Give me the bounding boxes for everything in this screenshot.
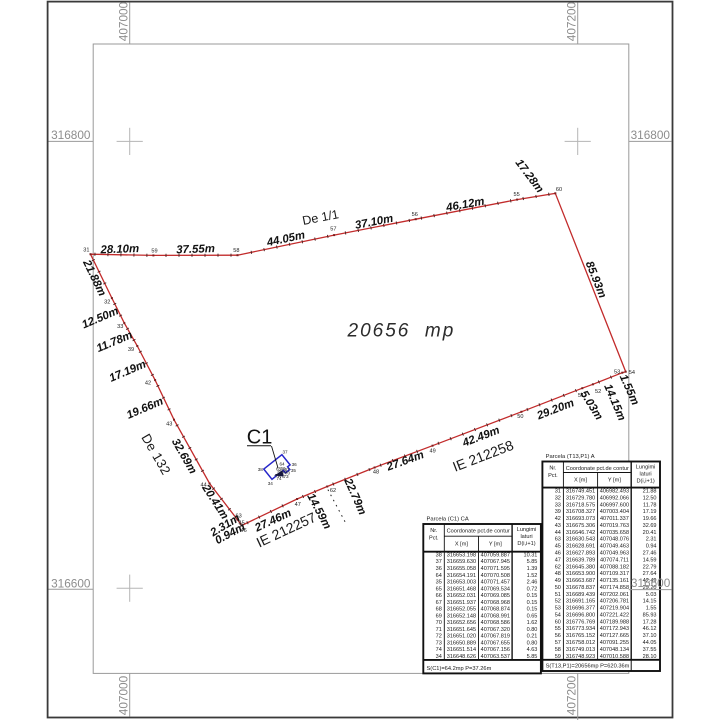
- svg-text:407003.404: 407003.404: [600, 509, 629, 515]
- svg-text:316718.575: 316718.575: [566, 502, 595, 508]
- svg-text:316646.742: 316646.742: [566, 530, 595, 536]
- svg-text:Lungimi: Lungimi: [517, 527, 537, 533]
- svg-text:57: 57: [555, 640, 561, 646]
- svg-text:Parcela (C1) CA: Parcela (C1) CA: [427, 517, 469, 523]
- svg-text:70: 70: [436, 620, 442, 626]
- svg-text:46: 46: [240, 528, 246, 534]
- svg-text:407068.586: 407068.586: [481, 620, 510, 626]
- svg-text:316773.934: 316773.934: [566, 626, 595, 632]
- svg-text:0.94: 0.94: [646, 544, 657, 550]
- svg-text:36: 36: [292, 462, 298, 467]
- svg-text:407067.320: 407067.320: [481, 627, 510, 633]
- svg-text:59: 59: [555, 654, 561, 660]
- svg-text:42: 42: [555, 516, 561, 522]
- svg-text:0.80: 0.80: [527, 640, 538, 646]
- svg-text:316693.073: 316693.073: [566, 516, 595, 522]
- svg-text:407135.161: 407135.161: [600, 578, 629, 584]
- svg-text:19.66: 19.66: [643, 516, 657, 522]
- svg-text:316765.152: 316765.152: [566, 633, 595, 639]
- svg-text:73: 73: [436, 640, 442, 646]
- svg-text:48: 48: [373, 470, 379, 476]
- svg-text:39: 39: [128, 347, 134, 353]
- svg-text:Coordonate pct.de contur: Coordonate pct.de contur: [566, 466, 629, 472]
- svg-text:34: 34: [436, 654, 442, 660]
- svg-text:407127.665: 407127.665: [600, 633, 629, 639]
- svg-text:S(T13,P1)=20656mp P=620.36m: S(T13,P1)=20656mp P=620.36m: [546, 664, 630, 670]
- svg-text:407048.134: 407048.134: [600, 647, 629, 653]
- svg-text:45: 45: [238, 520, 244, 526]
- svg-text:57: 57: [330, 227, 336, 233]
- svg-text:316653.003: 316653.003: [447, 580, 476, 586]
- svg-text:5.03: 5.03: [646, 592, 657, 598]
- svg-text:49: 49: [555, 578, 561, 584]
- svg-text:407070.508: 407070.508: [481, 573, 510, 579]
- svg-text:407189.988: 407189.988: [600, 619, 629, 625]
- svg-text:55: 55: [555, 626, 561, 632]
- svg-text:316651.468: 316651.468: [447, 586, 476, 592]
- svg-text:laturi: laturi: [520, 534, 532, 540]
- svg-text:62: 62: [330, 488, 336, 494]
- svg-text:407011.337: 407011.337: [600, 516, 629, 522]
- svg-text:316675.306: 316675.306: [566, 523, 595, 529]
- svg-text:Coordonate pct.de contur: Coordonate pct.de contur: [447, 528, 510, 534]
- svg-text:406997.600: 406997.600: [600, 502, 629, 508]
- svg-text:0.15: 0.15: [527, 593, 538, 599]
- svg-text:50: 50: [555, 585, 561, 591]
- svg-text:1.55: 1.55: [646, 606, 657, 612]
- svg-text:316696.377: 316696.377: [566, 606, 595, 612]
- svg-text:316749.451: 316749.451: [566, 489, 595, 495]
- svg-text:316729.780: 316729.780: [566, 495, 595, 501]
- svg-text:64: 64: [436, 573, 442, 579]
- svg-text:316652.148: 316652.148: [447, 613, 476, 619]
- svg-text:407069.085: 407069.085: [481, 593, 510, 599]
- svg-text:63: 63: [555, 537, 561, 543]
- svg-text:72: 72: [436, 634, 442, 640]
- svg-text:0.72: 0.72: [527, 586, 538, 592]
- svg-text:407200: 407200: [565, 675, 579, 715]
- svg-text:316600: 316600: [51, 577, 91, 591]
- svg-text:20656 mp: 20656 mp: [347, 321, 456, 342]
- svg-text:316639.789: 316639.789: [566, 557, 595, 563]
- svg-text:36: 36: [436, 566, 442, 572]
- svg-text:407069.534: 407069.534: [481, 586, 510, 592]
- svg-text:46.12: 46.12: [643, 626, 657, 632]
- svg-text:37.55: 37.55: [643, 647, 657, 653]
- svg-text:31: 31: [83, 248, 89, 254]
- svg-text:2.31: 2.31: [646, 537, 657, 543]
- svg-text:407048.076: 407048.076: [600, 537, 629, 543]
- svg-text:66: 66: [436, 593, 442, 599]
- svg-text:5.85: 5.85: [527, 654, 538, 660]
- svg-text:32: 32: [555, 495, 561, 501]
- svg-text:316652.031: 316652.031: [447, 593, 476, 599]
- svg-text:S(C1)=64.2mp P=37.26m: S(C1)=64.2mp P=37.26m: [427, 666, 492, 672]
- svg-text:35: 35: [291, 468, 297, 473]
- svg-text:407035.658: 407035.658: [600, 530, 629, 536]
- svg-text:316627.893: 316627.893: [566, 551, 595, 557]
- svg-text:406992.066: 406992.066: [600, 495, 629, 501]
- svg-text:56: 56: [555, 633, 561, 639]
- svg-text:0.15: 0.15: [527, 600, 538, 606]
- svg-text:407206.781: 407206.781: [600, 599, 629, 605]
- svg-text:17.19: 17.19: [643, 509, 657, 515]
- svg-text:68: 68: [436, 607, 442, 613]
- svg-text:51: 51: [578, 393, 584, 399]
- svg-text:407200: 407200: [565, 1, 579, 41]
- svg-text:2.46: 2.46: [527, 580, 538, 586]
- svg-text:316696.800: 316696.800: [566, 613, 595, 619]
- svg-text:1.62: 1.62: [527, 620, 538, 626]
- svg-text:407000: 407000: [117, 675, 131, 715]
- svg-text:22.79: 22.79: [643, 564, 657, 570]
- svg-text:316628.691: 316628.691: [566, 544, 595, 550]
- svg-text:316800: 316800: [631, 128, 671, 142]
- svg-text:407071.457: 407071.457: [481, 580, 510, 586]
- svg-text:38: 38: [436, 553, 442, 559]
- svg-text:Lungimi: Lungimi: [636, 465, 656, 471]
- svg-text:12.50: 12.50: [643, 495, 657, 501]
- svg-text:5.85: 5.85: [527, 559, 538, 565]
- svg-text:laturi: laturi: [640, 472, 652, 478]
- svg-text:C1: C1: [247, 427, 273, 449]
- svg-text:37: 37: [282, 450, 288, 455]
- svg-text:407174.858: 407174.858: [600, 585, 629, 591]
- svg-text:47: 47: [555, 557, 561, 563]
- svg-text:407068.968: 407068.968: [481, 600, 510, 606]
- svg-text:63: 63: [235, 513, 241, 519]
- svg-text:316663.687: 316663.687: [566, 578, 595, 584]
- svg-text:316630.543: 316630.543: [566, 537, 595, 543]
- svg-text:51: 51: [555, 592, 561, 598]
- svg-text:50: 50: [517, 414, 523, 420]
- svg-text:316749.013: 316749.013: [566, 647, 595, 653]
- svg-text:316651.937: 316651.937: [447, 600, 476, 606]
- svg-text:407049.463: 407049.463: [600, 544, 629, 550]
- svg-text:60: 60: [555, 619, 561, 625]
- svg-text:Parcela (T13,P1) A: Parcela (T13,P1) A: [546, 454, 595, 460]
- svg-text:43: 43: [166, 422, 172, 428]
- svg-text:14.59: 14.59: [643, 557, 657, 563]
- svg-text:54: 54: [555, 613, 561, 619]
- svg-text:35: 35: [436, 580, 442, 586]
- svg-text:37: 37: [436, 559, 442, 565]
- svg-text:407063.537: 407063.537: [481, 654, 510, 660]
- svg-text:407172.943: 407172.943: [600, 626, 629, 632]
- svg-text:407000: 407000: [117, 1, 131, 41]
- svg-text:65: 65: [436, 586, 442, 592]
- svg-text:21.88: 21.88: [643, 489, 657, 495]
- svg-text:407068.874: 407068.874: [481, 607, 510, 613]
- svg-text:46: 46: [555, 551, 561, 557]
- svg-text:316651.645: 316651.645: [447, 627, 476, 633]
- svg-text:316651.514: 316651.514: [447, 647, 476, 653]
- svg-text:D(i,i+1): D(i,i+1): [637, 479, 655, 485]
- svg-text:62: 62: [555, 564, 561, 570]
- svg-text:316648.626: 316648.626: [447, 654, 476, 660]
- svg-text:316708.327: 316708.327: [566, 509, 595, 515]
- svg-text:33: 33: [555, 502, 561, 508]
- svg-text:17.28: 17.28: [643, 619, 657, 625]
- svg-text:316800: 316800: [51, 128, 91, 142]
- svg-text:Pct.: Pct.: [548, 473, 558, 479]
- svg-text:Pct.: Pct.: [429, 535, 439, 541]
- svg-text:407068.991: 407068.991: [481, 613, 510, 619]
- svg-text:316776.769: 316776.769: [566, 619, 595, 625]
- svg-text:316651.020: 316651.020: [447, 634, 476, 640]
- svg-text:407088.182: 407088.182: [600, 564, 629, 570]
- svg-text:316678.837: 316678.837: [566, 585, 595, 591]
- svg-text:316691.165: 316691.165: [566, 599, 595, 605]
- svg-text:407067.655: 407067.655: [481, 640, 510, 646]
- svg-text:31: 31: [555, 489, 561, 495]
- svg-text:0.80: 0.80: [527, 627, 538, 633]
- svg-text:D(i,i+1): D(i,i+1): [517, 541, 535, 547]
- svg-text:407109.317: 407109.317: [600, 571, 629, 577]
- svg-text:71: 71: [436, 627, 442, 633]
- svg-text:407067.156: 407067.156: [481, 647, 510, 653]
- svg-text:0.15: 0.15: [527, 607, 538, 613]
- svg-text:316689.439: 316689.439: [566, 592, 595, 598]
- svg-text:74: 74: [436, 647, 442, 653]
- svg-text:407219.904: 407219.904: [600, 606, 629, 612]
- svg-text:316655.058: 316655.058: [447, 566, 476, 572]
- svg-text:45: 45: [555, 544, 561, 550]
- svg-text:33: 33: [117, 324, 123, 330]
- svg-text:11.78: 11.78: [643, 502, 656, 508]
- svg-text:34: 34: [268, 481, 274, 486]
- svg-text:316758.012: 316758.012: [566, 640, 595, 646]
- svg-text:43: 43: [555, 523, 561, 529]
- svg-text:27.46: 27.46: [643, 551, 657, 557]
- svg-text:407074.711: 407074.711: [600, 557, 629, 563]
- svg-text:60: 60: [556, 187, 562, 193]
- svg-text:56: 56: [412, 212, 418, 218]
- svg-text:28.10m: 28.10m: [99, 243, 139, 256]
- svg-text:316645.380: 316645.380: [566, 564, 595, 570]
- svg-text:316653.900: 316653.900: [566, 571, 595, 577]
- svg-text:58: 58: [555, 647, 561, 653]
- svg-text:407059.887: 407059.887: [481, 553, 510, 559]
- svg-text:407091.255: 407091.255: [600, 640, 629, 646]
- svg-text:37.55m: 37.55m: [176, 243, 215, 256]
- svg-text:407067.819: 407067.819: [481, 634, 510, 640]
- svg-text:85.93: 85.93: [643, 613, 657, 619]
- svg-text:39: 39: [555, 509, 561, 515]
- svg-text:316748.923: 316748.923: [566, 654, 595, 660]
- svg-text:47: 47: [295, 502, 301, 508]
- svg-text:1.52: 1.52: [527, 573, 538, 579]
- svg-text:44: 44: [555, 530, 561, 536]
- svg-text:49: 49: [429, 449, 435, 455]
- svg-text:Y [m]: Y [m]: [608, 478, 621, 484]
- svg-text:44.05: 44.05: [643, 640, 657, 646]
- svg-text:37.10: 37.10: [643, 633, 657, 639]
- svg-text:53: 53: [614, 369, 620, 375]
- svg-text:316652.055: 316652.055: [447, 607, 476, 613]
- svg-text:316650.889: 316650.889: [447, 640, 476, 646]
- svg-text:14.15: 14.15: [643, 599, 657, 605]
- svg-text:48: 48: [555, 571, 561, 577]
- svg-text:316659.630: 316659.630: [447, 559, 476, 565]
- svg-text:54: 54: [629, 370, 635, 376]
- svg-text:10.31: 10.31: [524, 553, 538, 559]
- svg-text:59: 59: [151, 248, 157, 254]
- svg-text:52: 52: [555, 599, 561, 605]
- svg-text:4.63: 4.63: [527, 647, 538, 653]
- svg-text:407202.061: 407202.061: [600, 592, 629, 598]
- svg-text:Nr.: Nr.: [549, 466, 557, 472]
- svg-text:38: 38: [258, 467, 264, 472]
- svg-text:X [m]: X [m]: [574, 478, 587, 484]
- svg-text:67: 67: [436, 600, 442, 606]
- svg-text:407071.595: 407071.595: [481, 566, 510, 572]
- svg-text:32: 32: [104, 299, 110, 305]
- svg-text:407221.422: 407221.422: [600, 613, 629, 619]
- svg-text:0.65: 0.65: [527, 613, 538, 619]
- svg-text:407010.588: 407010.588: [600, 654, 629, 660]
- svg-text:316654.191: 316654.191: [447, 573, 476, 579]
- svg-text:406982.493: 406982.493: [600, 489, 629, 495]
- svg-text:X [m]: X [m]: [455, 541, 468, 547]
- svg-text:Y [m]: Y [m]: [489, 541, 502, 547]
- svg-text:316652.656: 316652.656: [447, 620, 476, 626]
- svg-text:0.21: 0.21: [527, 634, 538, 640]
- svg-text:44: 44: [200, 483, 206, 489]
- svg-text:32.69: 32.69: [643, 523, 657, 529]
- svg-text:73: 73: [283, 474, 289, 479]
- svg-text:316600: 316600: [631, 576, 671, 590]
- svg-text:55: 55: [513, 192, 519, 198]
- svg-text:58: 58: [233, 248, 239, 254]
- svg-text:1.39: 1.39: [527, 566, 538, 572]
- svg-text:28.10: 28.10: [643, 654, 657, 660]
- svg-text:Nr.: Nr.: [430, 528, 438, 534]
- svg-text:53: 53: [555, 606, 561, 612]
- svg-text:407019.763: 407019.763: [600, 523, 629, 529]
- svg-text:20.41: 20.41: [643, 530, 657, 536]
- svg-text:74: 74: [276, 476, 282, 481]
- svg-text:42: 42: [145, 381, 151, 387]
- svg-text:69: 69: [436, 613, 442, 619]
- svg-text:407049.963: 407049.963: [600, 551, 629, 557]
- svg-text:316653.198: 316653.198: [447, 553, 476, 559]
- svg-text:52: 52: [595, 389, 601, 395]
- svg-text:407067.945: 407067.945: [481, 559, 510, 565]
